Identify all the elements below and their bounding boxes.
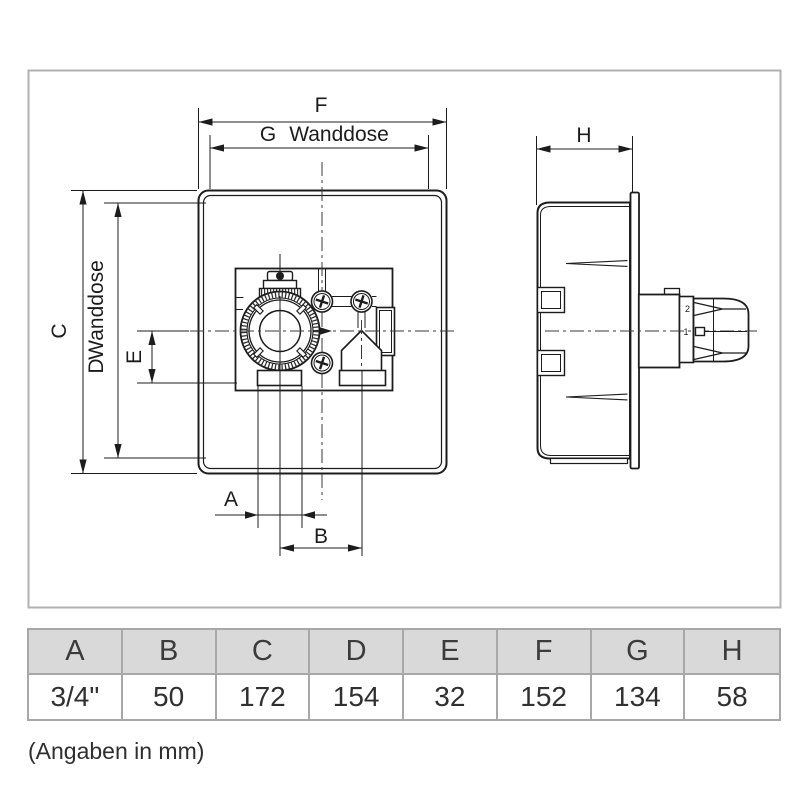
valve-stem [696, 328, 705, 336]
table-value-g: 134 [592, 675, 686, 719]
dim-b-label: B [314, 525, 328, 548]
valve-mark-2: 2 [685, 304, 690, 314]
dim-h-label: H [576, 124, 591, 147]
dim-f-label: F [315, 94, 328, 117]
table-header-f: F [498, 630, 592, 675]
dim-g-letter: G [260, 123, 276, 146]
table-value-a: 3/4" [29, 675, 123, 719]
dim-g-word: Wanddose [289, 123, 389, 146]
table-value-c: 172 [217, 675, 311, 719]
table-value-d: 154 [310, 675, 404, 719]
table-value-e: 32 [404, 675, 498, 719]
dimension-table: A B C D E F G H 3/4" 50 172 154 32 152 1… [27, 628, 781, 721]
dim-a-label: A [224, 488, 238, 511]
table-header-e: E [404, 630, 498, 675]
valve-connector [639, 289, 749, 368]
table-value-h: 58 [685, 675, 779, 719]
table-header-d: D [310, 630, 404, 675]
dim-c-label: C [48, 323, 71, 338]
table-header-g: G [592, 630, 686, 675]
table-header-h: H [685, 630, 779, 675]
units-footnote: (Angaben in mm) [28, 738, 204, 765]
latch-clip-bottom [538, 351, 565, 376]
table-value-b: 50 [123, 675, 217, 719]
valve-mark-1: 1 [683, 327, 688, 337]
table-header-c: C [217, 630, 311, 675]
valve-assembly [236, 269, 395, 391]
table-header-a: A [29, 630, 123, 675]
dim-d-word: Wanddose [85, 260, 108, 360]
dim-e-label: E [123, 350, 146, 364]
table-value-f: 152 [498, 675, 592, 719]
technical-drawing: F G Wanddose H C D Wanddose E A B 2 1 [0, 0, 800, 625]
latch-clip-top [538, 288, 565, 313]
side-box-foot [551, 459, 628, 464]
table-header-b: B [123, 630, 217, 675]
